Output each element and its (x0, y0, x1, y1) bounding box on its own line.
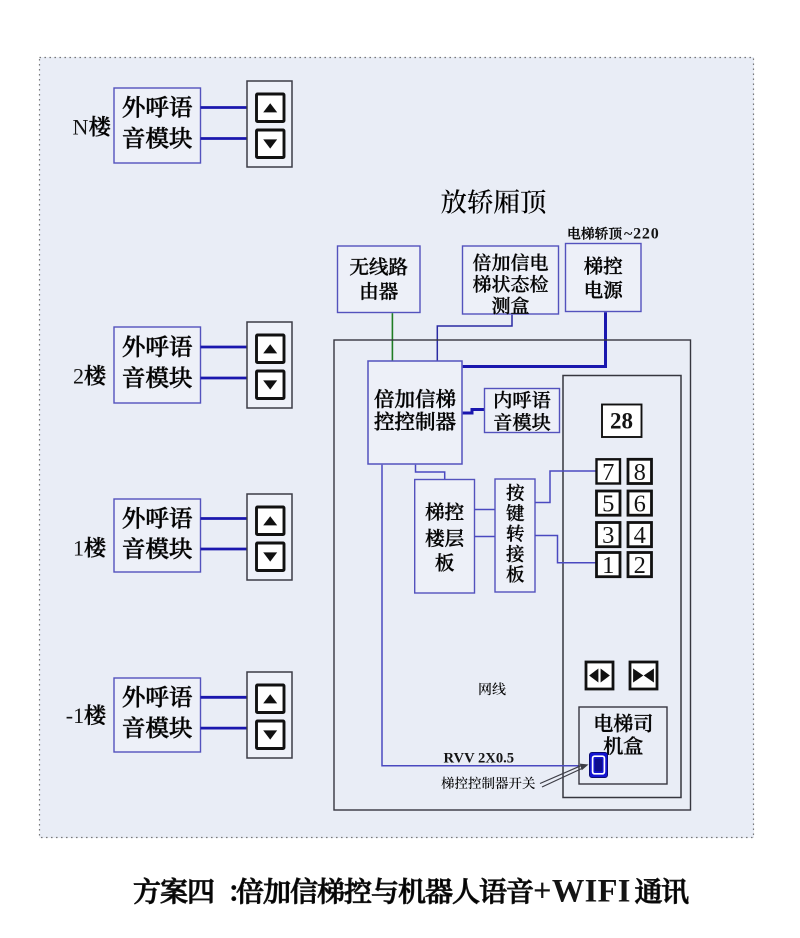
svg-text:6: 6 (634, 491, 646, 518)
svg-text:N: N (73, 115, 89, 140)
svg-text:2: 2 (634, 552, 646, 579)
svg-text:2: 2 (73, 364, 84, 389)
svg-text:1: 1 (602, 552, 614, 579)
svg-text:+WIFI: +WIFI (533, 874, 631, 910)
svg-text:28: 28 (610, 408, 633, 433)
svg-text:3: 3 (602, 522, 614, 549)
svg-text:7: 7 (602, 459, 614, 486)
svg-text:-1: -1 (66, 703, 84, 728)
svg-text:RVV 2X0.5: RVV 2X0.5 (444, 751, 515, 767)
svg-text:5: 5 (602, 491, 614, 518)
svg-text:1: 1 (73, 536, 84, 561)
svg-text:~220: ~220 (624, 226, 660, 243)
svg-text:8: 8 (634, 459, 646, 486)
svg-text:4: 4 (634, 522, 646, 549)
